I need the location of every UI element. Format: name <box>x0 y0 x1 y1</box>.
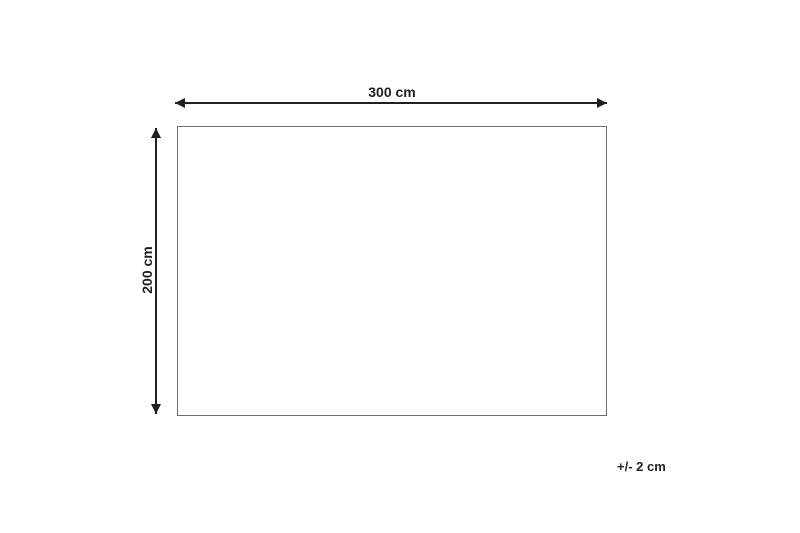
tolerance-label: +/- 2 cm <box>617 459 737 474</box>
dimension-diagram: 300 cm 200 cm +/- 2 cm <box>0 0 800 533</box>
horizontal-dimension-arrow <box>175 102 607 104</box>
height-dimension-label: 200 cm <box>139 190 155 350</box>
vertical-dimension-arrow <box>155 128 157 414</box>
width-dimension-label: 300 cm <box>312 84 472 100</box>
product-outline-rectangle <box>177 126 607 416</box>
